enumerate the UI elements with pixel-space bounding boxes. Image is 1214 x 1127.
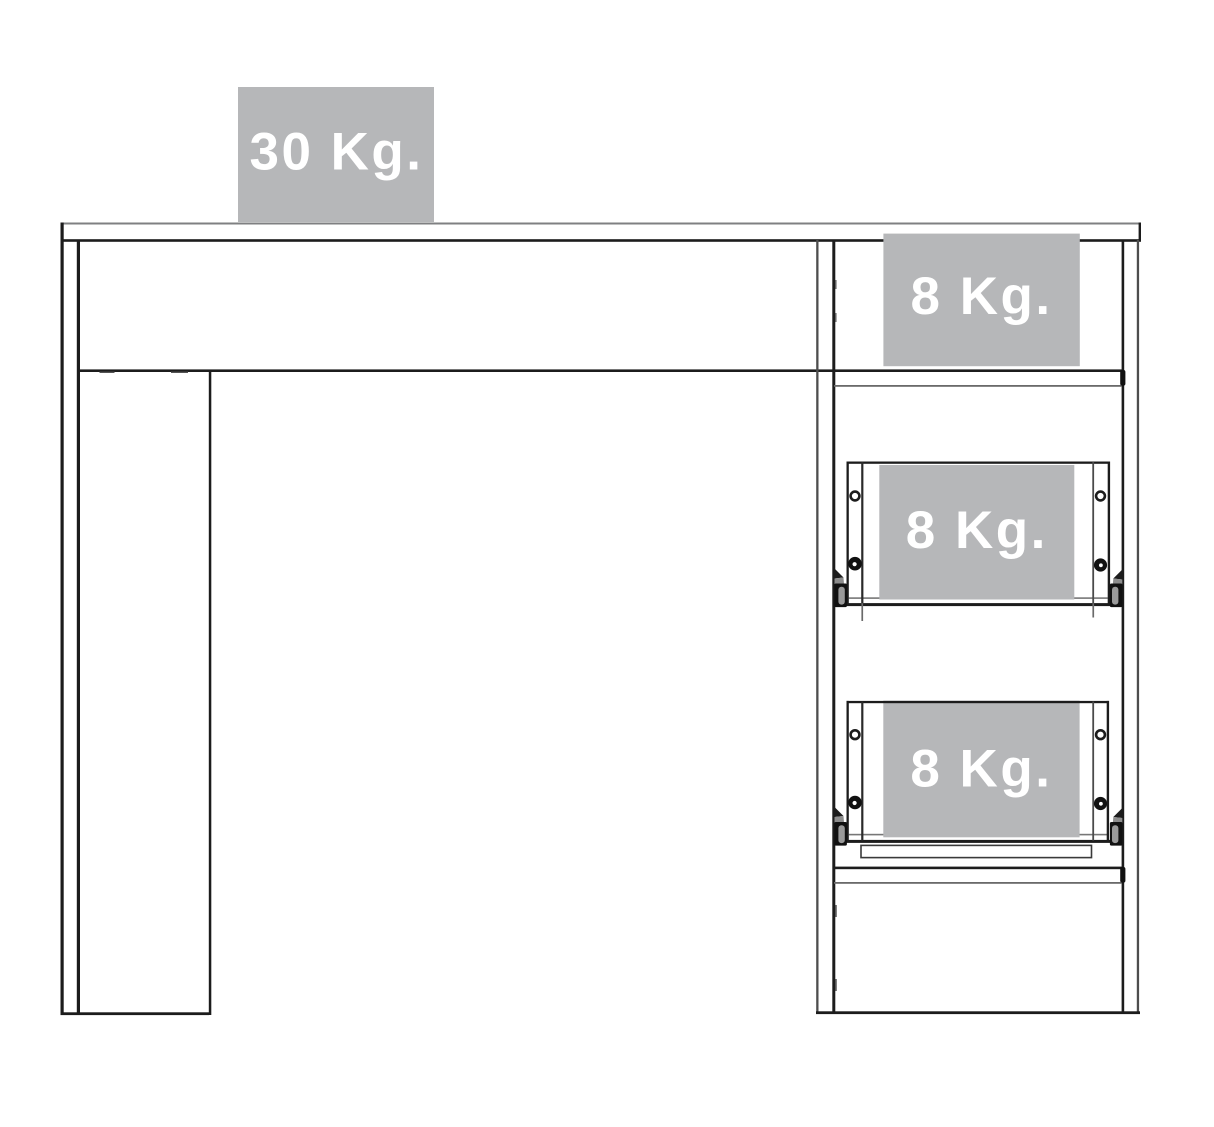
svg-text:8 Kg.: 8 Kg. — [906, 501, 1048, 560]
svg-text:30 Kg.: 30 Kg. — [249, 123, 423, 182]
svg-text:8 Kg.: 8 Kg. — [910, 740, 1052, 799]
svg-text:8 Kg.: 8 Kg. — [911, 267, 1053, 326]
